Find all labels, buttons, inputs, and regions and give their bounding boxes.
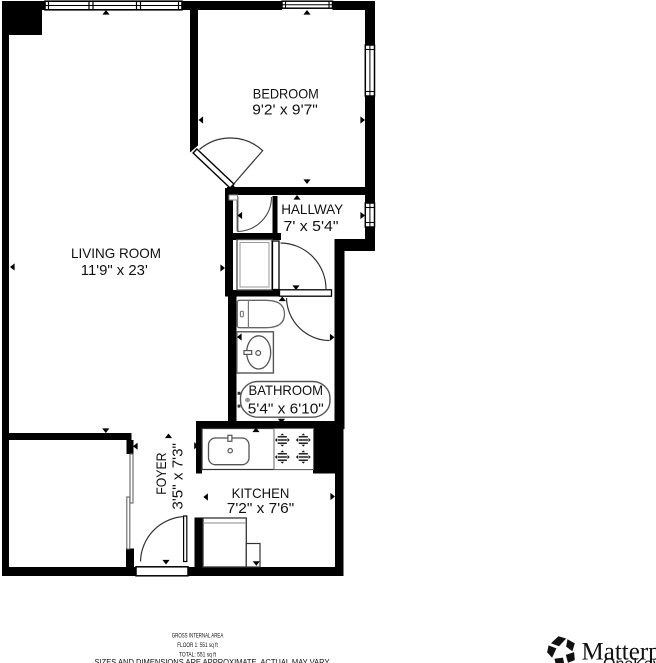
svg-text:BATHROOM: BATHROOM [249, 382, 324, 398]
svg-text:SIZES AND DIMENSIONS ARE APPRO: SIZES AND DIMENSIONS ARE APPROXIMATE, AC… [95, 658, 331, 663]
svg-text:LIVING ROOM: LIVING ROOM [71, 245, 161, 261]
svg-text:BEDROOM: BEDROOM [253, 86, 319, 102]
svg-text:7' x 5'4": 7' x 5'4" [284, 218, 339, 235]
svg-text:7'2" x 7'6": 7'2" x 7'6" [227, 500, 294, 517]
svg-text:GROSS INTERNAL AREA: GROSS INTERNAL AREA [172, 633, 224, 640]
svg-text:11'9" x 23': 11'9" x 23' [81, 262, 148, 279]
svg-text:5'4" x 6'10": 5'4" x 6'10" [248, 401, 324, 418]
svg-text:HALLWAY: HALLWAY [281, 201, 344, 217]
svg-text:Matterport: Matterport [582, 639, 656, 663]
svg-text:9'2' x 9'7": 9'2' x 9'7" [252, 102, 318, 119]
svg-text:FLOOR 1: 551 sq ft: FLOOR 1: 551 sq ft [177, 642, 218, 649]
svg-text:KITCHEN: KITCHEN [232, 485, 290, 501]
svg-text:FOYER: FOYER [153, 452, 169, 494]
svg-text:3'5" x 7'3": 3'5" x 7'3" [170, 443, 187, 510]
